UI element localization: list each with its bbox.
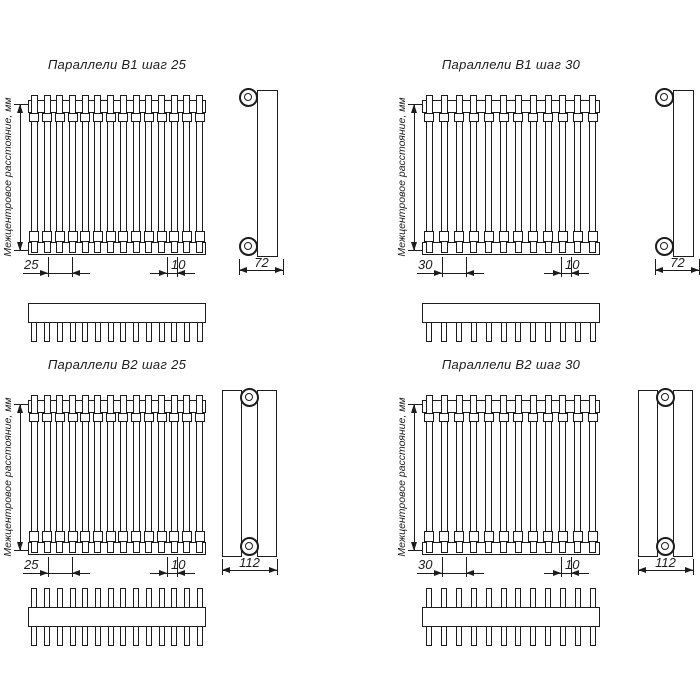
tube-collar <box>169 231 179 242</box>
side-profile <box>673 90 694 257</box>
plan-tube-section <box>146 627 152 646</box>
tube-collar <box>424 413 434 422</box>
tube-collar <box>588 113 598 122</box>
arrow-right-icon <box>434 270 442 276</box>
tube-collar <box>195 531 205 542</box>
pipe-port-top <box>240 388 259 407</box>
tube-collar <box>118 231 128 242</box>
side-profile <box>257 90 278 257</box>
tube-collar <box>499 413 509 422</box>
tube-collar <box>68 231 78 242</box>
tube-collar <box>42 413 52 422</box>
pipe-port-bottom <box>240 537 259 556</box>
plan-tube-section <box>57 588 63 607</box>
tube-collar <box>469 413 479 422</box>
plan-tube-row-front <box>422 626 600 646</box>
tube-collar <box>484 113 494 122</box>
arrow-left-icon <box>466 270 474 276</box>
tube-collar <box>93 231 103 242</box>
top-collector <box>422 400 600 413</box>
plan-tube-row-back <box>28 588 206 607</box>
arrow-left-icon <box>239 267 247 273</box>
dimension-tick <box>561 557 562 577</box>
arrow-left-icon <box>72 270 80 276</box>
tube-collar <box>131 531 141 542</box>
tube-collar <box>513 531 523 542</box>
arrow-left-icon <box>177 270 185 276</box>
dimension-line <box>150 573 195 574</box>
pitch-dimension-label: 25 <box>24 557 38 572</box>
tube-collar <box>29 531 39 542</box>
tube-collar <box>157 113 167 122</box>
plan-tube-row-back <box>422 588 600 607</box>
arrow-right-icon <box>40 270 48 276</box>
tube-collar <box>499 231 509 242</box>
plan-tube-section <box>471 588 477 607</box>
tube-collar <box>454 113 464 122</box>
tube-collar <box>106 231 116 242</box>
tube-collar <box>588 413 598 422</box>
drawing-panel-b2-step25: Параллели В2 шаг 25 Межцентровое расстоя… <box>0 300 306 600</box>
dimension-tick <box>48 257 49 277</box>
front-view <box>28 90 206 258</box>
plan-tube-section <box>57 627 63 646</box>
arrow-right-icon <box>40 570 48 576</box>
arrow-up-icon <box>411 404 417 413</box>
tube-collar <box>106 113 116 122</box>
plan-tube-section <box>44 588 50 607</box>
tube-collar <box>144 113 154 122</box>
pipe-port-top <box>656 388 675 407</box>
vertical-dimension-line <box>20 404 21 551</box>
arrow-right-icon <box>159 270 167 276</box>
tube-collar <box>182 531 192 542</box>
pitch-dimension-label: 30 <box>418 557 432 572</box>
plan-tube-section <box>530 588 536 607</box>
plan-tube-section <box>545 627 551 646</box>
tube-collar <box>424 113 434 122</box>
plan-tube-section <box>159 627 165 646</box>
tube-collar <box>157 531 167 542</box>
dimension-tick <box>167 257 168 277</box>
arrow-left-icon <box>466 570 474 576</box>
arrow-right-icon <box>275 267 283 273</box>
arrow-left-icon <box>177 570 185 576</box>
arrow-left-icon <box>222 567 230 573</box>
tube-collar <box>454 231 464 242</box>
dimension-line <box>150 273 195 274</box>
plan-tube-section <box>197 588 203 607</box>
plan-tube-section <box>184 588 190 607</box>
vertical-dimension-line <box>20 104 21 251</box>
tube-collar <box>157 413 167 422</box>
tube-collar <box>118 113 128 122</box>
arrow-right-icon <box>269 567 277 573</box>
tube-collar <box>55 531 65 542</box>
plan-tube-section <box>441 588 447 607</box>
plan-tube-section <box>560 588 566 607</box>
tube-collar <box>195 231 205 242</box>
tube-collar <box>144 413 154 422</box>
tube-collar <box>42 531 52 542</box>
tube-collar <box>157 231 167 242</box>
plan-tube-section <box>133 627 139 646</box>
plan-tube-section <box>590 627 596 646</box>
arrow-right-icon <box>553 270 561 276</box>
tube-collar <box>93 113 103 122</box>
plan-tube-section <box>575 588 581 607</box>
dimension-line <box>544 273 589 274</box>
arrow-up-icon <box>411 104 417 113</box>
plan-tube-section <box>486 588 492 607</box>
plan-tube-section <box>120 627 126 646</box>
arrow-down-icon <box>17 542 23 551</box>
tube-collar <box>573 113 583 122</box>
tube-collar <box>106 413 116 422</box>
plan-tube-section <box>146 588 152 607</box>
side-profile-back-row <box>257 390 277 557</box>
front-view <box>28 390 206 558</box>
plan-tube-section <box>456 588 462 607</box>
tube-collar <box>573 413 583 422</box>
technical-drawing-sheet: Параллели В1 шаг 25 Межцентровое расстоя… <box>0 0 700 700</box>
plan-tube-section <box>171 588 177 607</box>
tube-collar <box>29 231 39 242</box>
tube-collar <box>573 531 583 542</box>
tube-collar <box>182 413 192 422</box>
plan-tube-section <box>501 588 507 607</box>
plan-tube-section <box>95 627 101 646</box>
side-profile-front-row <box>222 390 242 557</box>
tube-collar <box>42 113 52 122</box>
tube-collar <box>29 113 39 122</box>
tube-collar <box>469 231 479 242</box>
bottom-collector <box>422 242 600 255</box>
tube-collar <box>195 113 205 122</box>
plan-tube-section <box>515 627 521 646</box>
tube-collar <box>68 413 78 422</box>
arrow-left-icon <box>638 567 646 573</box>
plan-tube-section <box>426 627 432 646</box>
arrow-right-icon <box>159 570 167 576</box>
tube-collar <box>93 531 103 542</box>
plan-tube-section <box>575 627 581 646</box>
tube-collar <box>543 413 553 422</box>
top-collector <box>28 400 206 413</box>
tube-collar <box>118 413 128 422</box>
plan-tube-section <box>184 627 190 646</box>
tube-collar <box>439 413 449 422</box>
tube-collar <box>528 531 538 542</box>
plan-tube-section <box>426 588 432 607</box>
tube-collar <box>106 531 116 542</box>
pitch-dimension-label: 25 <box>24 257 38 272</box>
plan-tube-section <box>545 588 551 607</box>
pipe-port-top <box>239 88 258 107</box>
plan-collector <box>28 607 206 627</box>
tube-collar <box>80 531 90 542</box>
tube-collar <box>131 231 141 242</box>
arrow-left-icon <box>571 270 579 276</box>
tube-collar <box>573 231 583 242</box>
arrow-down-icon <box>411 242 417 251</box>
drawing-panel-b2-step30: Параллели В2 шаг 30 Межцентровое расстоя… <box>394 300 700 600</box>
plan-collector <box>28 303 206 323</box>
arrow-up-icon <box>17 404 23 413</box>
top-collector <box>28 100 206 113</box>
dimension-tick <box>277 559 278 575</box>
plan-tube-section <box>515 588 521 607</box>
plan-tube-section <box>486 627 492 646</box>
tube-collar <box>454 531 464 542</box>
tube-collar <box>469 113 479 122</box>
tube-collar <box>68 531 78 542</box>
arrow-right-icon <box>685 567 693 573</box>
vertical-dimension-label: Межцентровое расстояние, мм <box>2 397 14 557</box>
plan-tube-section <box>31 588 37 607</box>
tube-collar <box>543 231 553 242</box>
arrow-left-icon <box>655 267 663 273</box>
drawing-title: Параллели В1 шаг 30 <box>422 57 600 72</box>
drawing-title: Параллели В2 шаг 30 <box>422 357 600 372</box>
plan-tube-row-front <box>28 626 206 646</box>
plan-tube-section <box>501 627 507 646</box>
tube-collar <box>499 531 509 542</box>
vertical-dimension-label: Межцентровое расстояние, мм <box>396 97 408 257</box>
plan-tube-section <box>456 627 462 646</box>
arrow-right-icon <box>553 570 561 576</box>
tube-collar <box>29 413 39 422</box>
tube-collar <box>131 113 141 122</box>
plan-tube-section <box>120 588 126 607</box>
plan-tube-section <box>471 627 477 646</box>
plan-tube-section <box>95 588 101 607</box>
bottom-collector <box>28 542 206 555</box>
pipe-port-bottom <box>655 237 674 256</box>
dimension-tick <box>561 257 562 277</box>
pipe-port-bottom <box>656 537 675 556</box>
tube-collar <box>439 231 449 242</box>
tube-collar <box>93 413 103 422</box>
tube-collar <box>80 413 90 422</box>
vertical-dimension-label: Межцентровое расстояние, мм <box>396 397 408 557</box>
pitch-dimension-label: 30 <box>418 257 432 272</box>
tube-collar <box>424 531 434 542</box>
vertical-dimension-label: Межцентровое расстояние, мм <box>2 97 14 257</box>
side-profile-back-row <box>673 390 693 557</box>
tube-collar <box>182 113 192 122</box>
plan-tube-section <box>197 627 203 646</box>
dimension-tick <box>167 557 168 577</box>
plan-tube-section <box>70 627 76 646</box>
pipe-port-bottom <box>239 237 258 256</box>
tube-collar <box>169 531 179 542</box>
vertical-dimension-line <box>414 104 415 251</box>
tube-collar <box>42 231 52 242</box>
tube-collar <box>424 231 434 242</box>
arrow-left-icon <box>571 570 579 576</box>
tube-collar <box>55 413 65 422</box>
tube-collar <box>588 231 598 242</box>
vertical-dimension-line <box>414 404 415 551</box>
arrow-down-icon <box>411 542 417 551</box>
tube-collar <box>80 231 90 242</box>
plan-collector <box>422 607 600 627</box>
tube-collar <box>484 531 494 542</box>
dimension-tick <box>48 557 49 577</box>
front-view <box>422 90 600 258</box>
tube-collar <box>182 231 192 242</box>
tube-collar <box>131 413 141 422</box>
tube-collar <box>558 413 568 422</box>
tube-collar <box>543 531 553 542</box>
plan-tube-section <box>133 588 139 607</box>
tube-collar <box>195 413 205 422</box>
tube-collar <box>55 113 65 122</box>
arrow-right-icon <box>691 267 699 273</box>
tube-collar <box>118 531 128 542</box>
tube-collar <box>588 531 598 542</box>
tube-collar <box>144 231 154 242</box>
plan-tube-section <box>82 627 88 646</box>
plan-tube-section <box>441 627 447 646</box>
plan-tube-section <box>108 588 114 607</box>
top-collector <box>422 100 600 113</box>
tube-collar <box>469 531 479 542</box>
tube-collar <box>513 231 523 242</box>
drawing-panel-b1-step25: Параллели В1 шаг 25 Межцентровое расстоя… <box>0 0 306 300</box>
dimension-tick <box>442 557 443 577</box>
plan-tube-section <box>108 627 114 646</box>
tube-collar <box>439 531 449 542</box>
tube-collar <box>80 113 90 122</box>
arrow-up-icon <box>17 104 23 113</box>
bottom-collector <box>28 242 206 255</box>
drawing-panel-b1-step30: Параллели В1 шаг 30 Межцентровое расстоя… <box>394 0 700 300</box>
plan-tube-section <box>31 627 37 646</box>
plan-tube-section <box>560 627 566 646</box>
pipe-port-top <box>655 88 674 107</box>
dimension-tick <box>283 259 284 275</box>
tube-collar <box>144 531 154 542</box>
arrow-left-icon <box>72 570 80 576</box>
tube-collar <box>558 531 568 542</box>
dimension-tick <box>693 559 694 575</box>
tube-collar <box>439 113 449 122</box>
arrow-right-icon <box>434 570 442 576</box>
plan-tube-section <box>159 588 165 607</box>
tube-collar <box>558 231 568 242</box>
tube-collar <box>528 413 538 422</box>
tube-collar <box>558 113 568 122</box>
drawing-title: Параллели В2 шаг 25 <box>28 357 206 372</box>
tube-collar <box>499 113 509 122</box>
plan-tube-section <box>530 627 536 646</box>
side-profile-front-row <box>638 390 658 557</box>
tube-collar <box>528 113 538 122</box>
front-view <box>422 390 600 558</box>
tube-collar <box>55 231 65 242</box>
plan-tube-section <box>590 588 596 607</box>
tube-collar <box>513 113 523 122</box>
dimension-line <box>544 573 589 574</box>
plan-tube-section <box>70 588 76 607</box>
plan-tube-section <box>44 627 50 646</box>
arrow-down-icon <box>17 242 23 251</box>
tube-collar <box>484 413 494 422</box>
tube-collar <box>543 113 553 122</box>
plan-tube-section <box>82 588 88 607</box>
tube-collar <box>169 113 179 122</box>
plan-tube-section <box>171 627 177 646</box>
drawing-title: Параллели В1 шаг 25 <box>28 57 206 72</box>
tube-collar <box>454 413 464 422</box>
tube-collar <box>513 413 523 422</box>
tube-collar <box>68 113 78 122</box>
dimension-tick <box>442 257 443 277</box>
plan-collector <box>422 303 600 323</box>
tube-collar <box>528 231 538 242</box>
tube-collar <box>484 231 494 242</box>
bottom-collector <box>422 542 600 555</box>
tube-collar <box>169 413 179 422</box>
